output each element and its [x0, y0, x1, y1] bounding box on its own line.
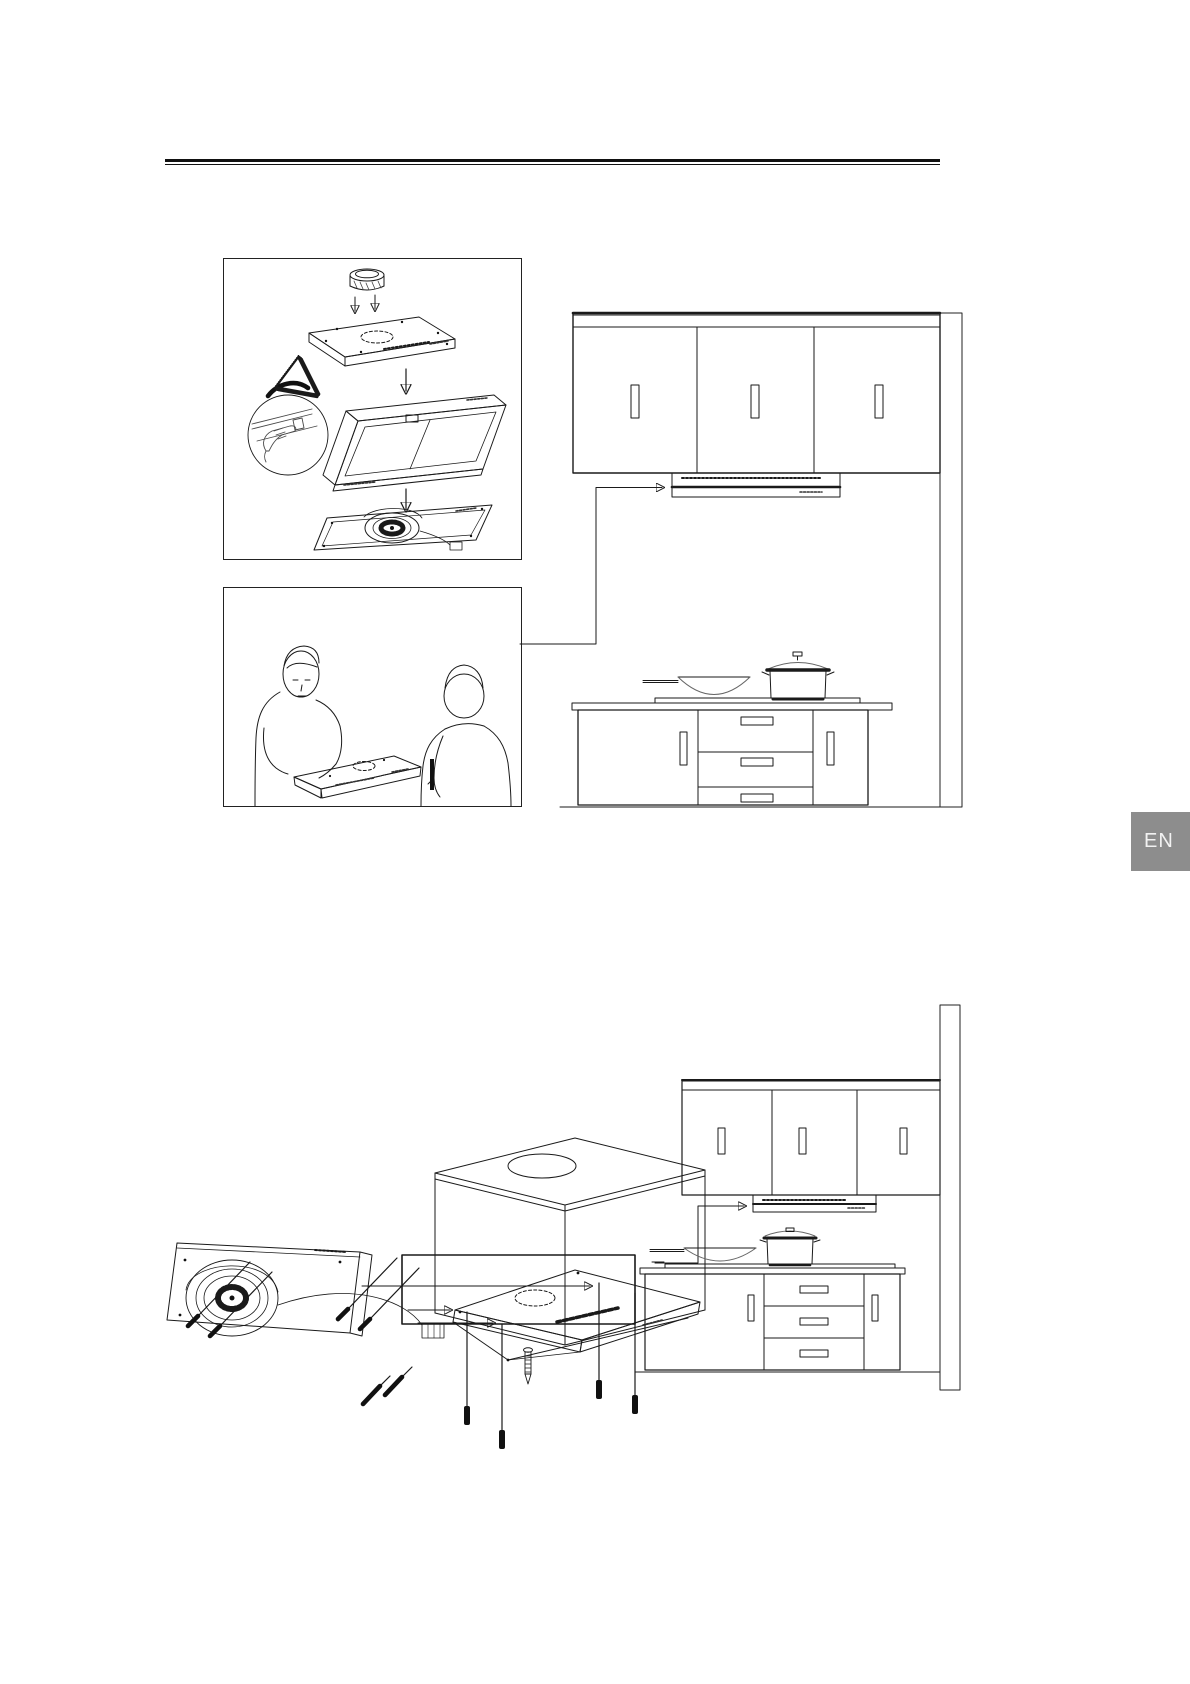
rotate-arrow-icon — [268, 383, 308, 396]
brick-wall-section — [940, 313, 962, 807]
person-right — [421, 665, 511, 806]
cooking-pot-icon — [760, 1228, 820, 1265]
figure1-box — [223, 258, 522, 560]
drawer-handle — [741, 794, 773, 802]
wok-pan-icon — [650, 1248, 756, 1261]
soffit-hatch — [573, 315, 940, 327]
drawer-handle — [741, 717, 773, 725]
base-door-handle — [748, 1295, 754, 1321]
drawer-handle — [800, 1318, 828, 1325]
base-cabinets — [560, 710, 940, 807]
worktop-and-hob — [640, 1228, 905, 1274]
cabinet-handle — [875, 385, 883, 418]
cabinet-handle — [900, 1128, 907, 1154]
carried-hood — [294, 756, 421, 798]
grip-mark — [430, 759, 434, 790]
drawer-handle — [800, 1286, 828, 1293]
person-left — [255, 646, 342, 806]
cooking-pot-icon — [762, 652, 834, 699]
wall-anchor-screw-icon — [524, 1348, 533, 1384]
down-arrows-small — [355, 295, 375, 311]
angled-mounting-screws — [188, 1258, 419, 1404]
figure2-box — [223, 587, 522, 807]
wok-pan-icon — [643, 677, 750, 695]
filter-release-hand-detail — [248, 383, 328, 475]
base-door-handle — [872, 1295, 878, 1321]
manual-page: EN — [0, 0, 1190, 1684]
hood-underside-filters-view — [323, 395, 506, 491]
language-tab-label: EN — [1131, 830, 1174, 853]
duct-collar-icon — [350, 269, 384, 290]
drawer-handle — [741, 758, 773, 766]
wall-cabinets — [682, 1080, 940, 1195]
cabinet-handle — [718, 1128, 725, 1154]
drawer-handle — [800, 1350, 828, 1357]
hood-fan-compartment-view — [314, 505, 492, 550]
range-hood-front — [672, 473, 840, 497]
base-door-handle — [680, 732, 687, 765]
base-door-handle — [827, 732, 834, 765]
hood-top-view — [309, 317, 455, 366]
base-cabinets — [635, 1274, 940, 1372]
cabinet-handle — [751, 385, 759, 418]
cabinet-handle — [631, 385, 639, 418]
figure1-hood-exploded-illustration — [224, 259, 521, 559]
soffit-hatch — [682, 1081, 940, 1090]
range-hood-front — [753, 1195, 876, 1212]
cabinet-handle — [799, 1128, 806, 1154]
figure2-two-person-lift-illustration — [224, 588, 521, 806]
kitchen-elevation-bottom — [620, 1000, 990, 1400]
wall-cabinets — [573, 313, 940, 473]
language-tab: EN — [1131, 812, 1190, 871]
hood-callout-leader — [655, 1206, 744, 1263]
worktop-and-hob — [572, 652, 892, 710]
kitchen-elevation-top — [520, 300, 980, 815]
header-double-rule — [165, 159, 940, 165]
brick-wall-section — [940, 1005, 960, 1390]
hood-callout-leader — [520, 488, 662, 645]
